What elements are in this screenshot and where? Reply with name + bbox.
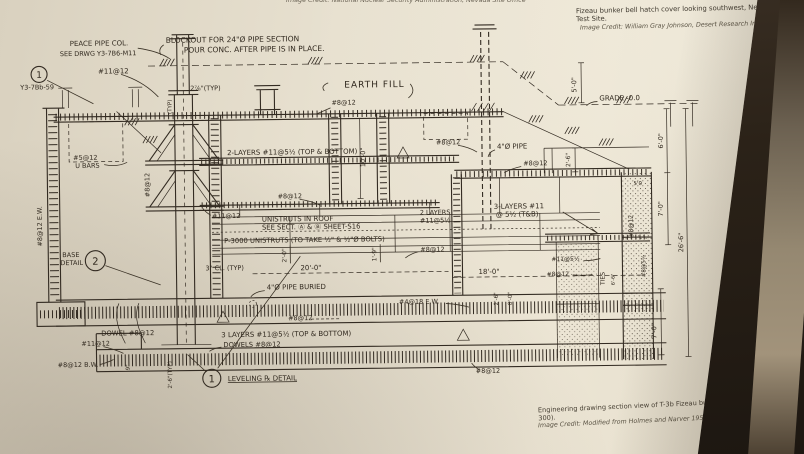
label-peace2: SEE DRWG Y3-7B6-M11 <box>60 49 137 58</box>
label-peace1: PEACE PIPE COL. <box>70 39 129 48</box>
label-cl3: 3" CL. (TYP) <box>205 264 244 272</box>
label-layers2b: #11@5½ <box>420 216 451 224</box>
label-dim20: 20'-0" <box>300 264 321 272</box>
label-dim6-0: 6'-0" <box>657 133 665 149</box>
museum-display-photo: Image Credit: National Nuclear Security … <box>0 0 804 454</box>
label-dim10-0: 10'-0" <box>359 148 367 168</box>
label-dim1-9: 1'-9" <box>371 247 378 262</box>
label-earthfill: EARTH FILL <box>344 80 405 91</box>
label-dim2-6b: 2'-6" <box>494 292 500 305</box>
label-dim2-0: 2'-0" <box>281 248 288 263</box>
label-bar8-slab: #8@12 <box>278 192 302 200</box>
label-leveling: LEVELING ℞ DETAIL <box>228 374 297 383</box>
label-dowels: DOWELS #8@12 <box>223 340 280 349</box>
label-bar8-floor: #8@12 <box>288 314 312 322</box>
label-dim26-6: 26'-6" <box>677 233 685 253</box>
label-bar8-r3: #8@12 <box>547 271 570 278</box>
ground-lines <box>148 52 701 133</box>
four-inch-pipe <box>471 25 499 229</box>
label-bar8-r2: #8@12 <box>523 159 547 167</box>
label-bar8-earth: #8@12 <box>331 99 355 107</box>
label-layers3b: @ 5½ (T&B) <box>496 210 539 219</box>
label-base2: DETAIL <box>60 259 83 267</box>
label-ubars1: #5@12 <box>73 154 97 162</box>
label-dim5-0b: 5'0 <box>633 181 642 187</box>
label-bar8-botright: #8@12 <box>476 367 500 375</box>
label-typ278: 2⅞"(TYP) <box>190 84 220 92</box>
circled-1-leveling: 1 <box>209 374 216 385</box>
label-dowel: DOWEL #8@12 <box>101 329 154 338</box>
label-layers3-bot: 3 LAYERS #11@5½ (TOP & BOTTOM) <box>221 330 351 340</box>
label-pipeburied: 4"Ø PIPE BURIED <box>267 283 326 292</box>
label-grade: GRADE -0.0 <box>599 94 640 102</box>
label-bar11-mid: #11@12 <box>212 212 241 220</box>
label-bar8-r1: #8@12 <box>436 138 460 146</box>
label-dim7-0a: 7'-0" <box>657 201 665 217</box>
label-base1: BASE <box>62 251 79 259</box>
label-bar11-bot: #11@12 <box>81 340 110 348</box>
label-dim8-0: 8'-0" <box>508 292 514 305</box>
label-dim2-6-roof: 2'-6" <box>565 153 572 168</box>
label-bar11-topleft: #11@12 <box>98 67 129 75</box>
label-ties: TIES <box>600 272 607 286</box>
grade-posts <box>664 100 698 126</box>
label-blockout2: POUR CONC. AFTER PIPE IS IN PLACE. <box>184 44 325 55</box>
label-dim5-0: 5'-0" <box>570 77 578 93</box>
label-pipe4: 4"Ø PIPE <box>497 142 527 150</box>
right-wall <box>555 172 653 360</box>
label-dim2-6-typ: 2'-6"(TYP) <box>168 361 174 388</box>
label-p3000: P-3000 UNISTRUTS (TO TAKE ½" & ½"Ø BOLTS… <box>224 235 385 245</box>
display-poster: Image Credit: National Nuclear Security … <box>0 0 804 454</box>
label-bar11-5-r: #11@5½ <box>551 256 580 263</box>
label-bar8-ew: #8@12 E.W. <box>36 206 44 246</box>
label-bar8-rwall: #8@12 <box>628 215 635 238</box>
label-dim6-6: 6'-6" <box>611 273 617 285</box>
label-bar8-bw: #8@12 B.W. <box>58 361 99 369</box>
label-tag: Y3-7Bb-59 <box>19 83 54 91</box>
engineering-drawing: 1 2 1 PEACE PIPE COL. SEE DRWG Y3-7B6-M1… <box>0 0 804 454</box>
background-wall <box>748 0 804 454</box>
label-bar8-5-r: #8@5½ <box>640 255 647 278</box>
label-dim18: 18'-0" <box>478 268 499 276</box>
label-dim7-0b: 7'-0" <box>650 323 658 339</box>
label-bar4-18: #4@18 E.W. <box>399 298 439 306</box>
label-typvert: (TYP) <box>167 100 173 114</box>
label-bar8-mid: #8@12 <box>420 245 444 253</box>
circled-2-base: 2 <box>92 257 99 268</box>
label-layers2-roof: 2-LAYERS #11@5½ (TOP & BOTTOM) <box>227 148 358 158</box>
wall-posts <box>58 87 142 108</box>
label-bar8-col: #8@12 <box>143 173 151 197</box>
left-wall <box>34 87 163 327</box>
label-blockout1: BLOCKOUT FOR 24"Ø PIPE SECTION <box>166 34 300 45</box>
circled-1-tag: 1 <box>36 71 42 81</box>
label-dim9: 9" <box>126 364 132 370</box>
label-uni2: SEE SECT. Ⓐ & Ⓑ SHEET-S16 <box>262 222 361 231</box>
pipe-stub <box>254 85 280 114</box>
label-ubars2: U BARS <box>75 162 99 170</box>
